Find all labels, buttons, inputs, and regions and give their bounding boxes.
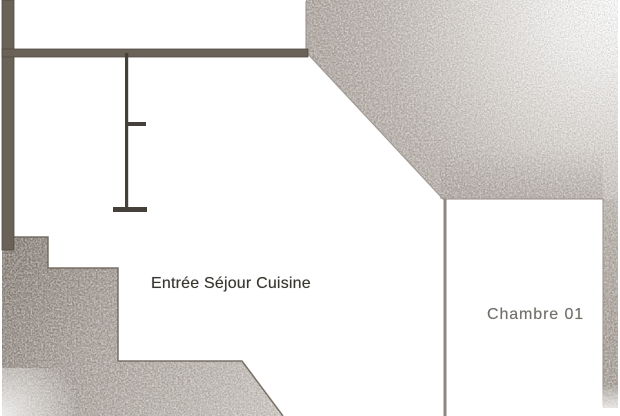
partition-wall-tick bbox=[128, 122, 146, 126]
right-strip-fade bbox=[598, 384, 620, 416]
partition-wall-end-cap bbox=[113, 207, 147, 212]
scan-grain-dark bbox=[2, 0, 618, 416]
room-label-chambre-01: Chambre 01 bbox=[487, 305, 584, 325]
partition-wall-vertical bbox=[125, 53, 128, 210]
exterior-wall-top bbox=[2, 49, 308, 57]
bottom-left-corner-fade bbox=[0, 368, 75, 416]
room-label-entree-sejour-cuisine: Entrée Séjour Cuisine bbox=[151, 274, 311, 294]
bedroom-wall-left bbox=[444, 199, 447, 416]
floor-plan: Entrée Séjour Cuisine Chambre 01 bbox=[0, 0, 620, 416]
exterior-wall-left bbox=[2, 0, 14, 250]
floor-plan-drawing bbox=[0, 0, 620, 416]
